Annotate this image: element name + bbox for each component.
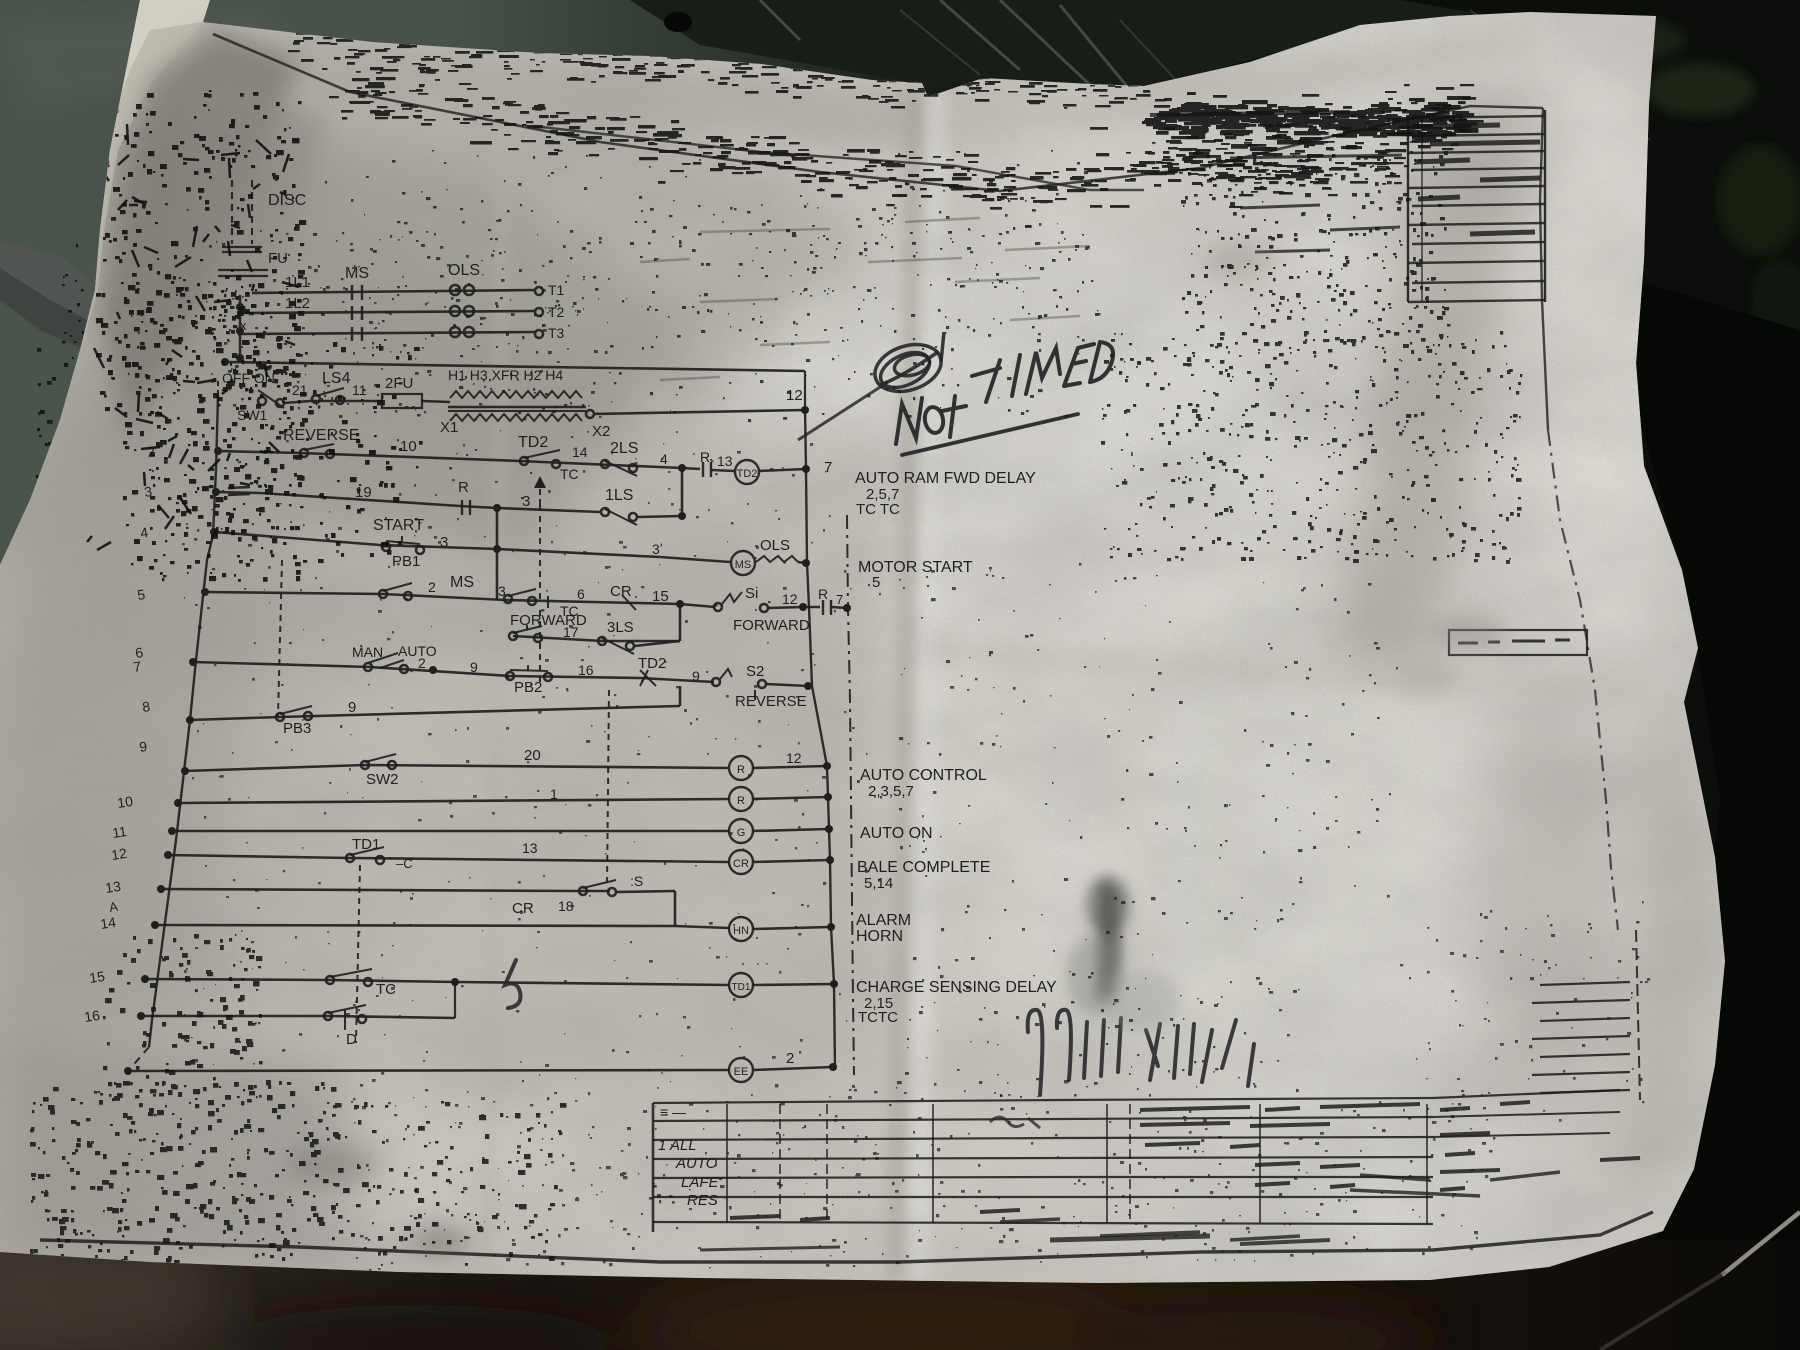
svg-text:CR: CR xyxy=(512,900,534,917)
svg-text:13: 13 xyxy=(104,878,122,896)
svg-text:DISC: DISC xyxy=(268,192,306,209)
svg-text:20: 20 xyxy=(524,747,541,764)
svg-text:LS4: LS4 xyxy=(322,370,351,387)
svg-text:12: 12 xyxy=(110,845,128,863)
svg-text:R: R xyxy=(818,586,828,602)
svg-text:PB1: PB1 xyxy=(392,553,420,570)
svg-text:S2: S2 xyxy=(746,663,764,680)
svg-text:16: 16 xyxy=(83,1007,101,1025)
svg-text:12: 12 xyxy=(786,387,803,404)
svg-text:R: R xyxy=(458,479,469,496)
svg-text:MAN: MAN xyxy=(352,644,383,660)
svg-text:10: 10 xyxy=(400,438,417,455)
svg-text:HN: HN xyxy=(733,925,749,937)
svg-text:AUTO: AUTO xyxy=(675,1155,718,1172)
svg-text:–C: –C xyxy=(396,856,413,871)
svg-text:SW2: SW2 xyxy=(366,771,399,788)
svg-text:1 ALL: 1 ALL xyxy=(658,1137,697,1154)
svg-text:7: 7 xyxy=(836,592,843,607)
svg-text:13: 13 xyxy=(522,840,538,856)
svg-text:12: 12 xyxy=(782,591,798,607)
svg-text:12: 12 xyxy=(786,750,802,766)
svg-text:TD2: TD2 xyxy=(737,468,758,480)
svg-text:MS: MS xyxy=(735,559,752,571)
svg-text:2LS: 2LS xyxy=(610,440,638,457)
svg-text:PB3: PB3 xyxy=(283,720,311,737)
svg-text:14: 14 xyxy=(572,444,588,460)
svg-text:PB2: PB2 xyxy=(514,679,542,696)
svg-text:9: 9 xyxy=(348,699,356,716)
svg-text:R: R xyxy=(737,764,745,776)
svg-text:OLS: OLS xyxy=(448,262,480,279)
svg-text:3: 3 xyxy=(440,534,448,551)
svg-text:CR: CR xyxy=(610,583,632,600)
svg-text:3ʼ: 3ʼ xyxy=(652,541,663,557)
svg-text:TC TC: TC TC xyxy=(856,501,900,518)
svg-text:RES: RES xyxy=(687,1192,718,1209)
svg-text:X2: X2 xyxy=(592,423,610,440)
svg-text::S: :S xyxy=(630,873,643,889)
svg-text:AUTO RAM FWD DELAY: AUTO RAM FWD DELAY xyxy=(855,470,1036,487)
svg-text:1LS: 1LS xyxy=(605,487,633,504)
svg-text:LAFE: LAFE xyxy=(681,1174,720,1191)
svg-text:15: 15 xyxy=(652,588,669,605)
svg-text:2: 2 xyxy=(418,655,426,671)
svg-text:2: 2 xyxy=(428,579,436,595)
svg-text:6: 6 xyxy=(577,586,585,602)
svg-text:Si: Si xyxy=(745,585,758,602)
svg-text:MS: MS xyxy=(345,265,369,282)
svg-text:BALE COMPLETE: BALE COMPLETE xyxy=(857,859,990,876)
svg-text:10: 10 xyxy=(116,793,134,811)
svg-text:R: R xyxy=(700,449,710,465)
svg-text:TD1: TD1 xyxy=(732,982,751,993)
svg-text:EE: EE xyxy=(734,1066,749,1078)
svg-text:REVERSE: REVERSE xyxy=(283,427,359,444)
svg-text:16: 16 xyxy=(578,662,594,678)
svg-text:15: 15 xyxy=(88,968,106,986)
svg-text:OLS: OLS xyxy=(760,537,790,554)
svg-text:R: R xyxy=(737,795,745,807)
svg-text:9: 9 xyxy=(470,659,478,675)
svg-text:2: 2 xyxy=(786,1050,794,1067)
svg-text:1L1: 1L1 xyxy=(285,274,310,291)
svg-text:CR: CR xyxy=(733,858,749,870)
svg-text:≡ —: ≡ — xyxy=(660,1104,686,1120)
svg-text:HORN: HORN xyxy=(856,928,903,945)
svg-text:7: 7 xyxy=(824,459,832,476)
svg-text:5,14: 5,14 xyxy=(864,875,893,892)
svg-text:13: 13 xyxy=(717,453,733,469)
svg-text:T3: T3 xyxy=(548,325,565,341)
svg-text:11: 11 xyxy=(111,823,128,841)
svg-text:1L2: 1L2 xyxy=(285,295,310,312)
svg-text:CHARGE SENSING DELAY: CHARGE SENSING DELAY xyxy=(856,979,1057,996)
svg-text:ALARM: ALARM xyxy=(856,912,911,929)
svg-text:AUTO CONTROL: AUTO CONTROL xyxy=(860,767,987,784)
svg-text:14: 14 xyxy=(99,914,117,932)
svg-text:TC: TC xyxy=(560,466,579,482)
svg-text:1: 1 xyxy=(550,786,558,802)
svg-text:TD2: TD2 xyxy=(518,434,548,451)
svg-text:T1: T1 xyxy=(548,282,565,298)
svg-text:3: 3 xyxy=(498,583,506,599)
svg-text:REVERSE: REVERSE xyxy=(735,693,807,710)
svg-text:MS: MS xyxy=(450,574,474,591)
svg-text:3LS: 3LS xyxy=(607,619,634,636)
svg-text:TCTC: TCTC xyxy=(858,1009,898,1026)
svg-text:H1 H3 XFR H2 H4: H1 H3 XFR H2 H4 xyxy=(448,367,563,383)
svg-text:FORWARD: FORWARD xyxy=(733,617,810,634)
svg-text:TD2: TD2 xyxy=(638,655,666,672)
svg-text:X1: X1 xyxy=(440,419,458,436)
svg-text:3: 3 xyxy=(522,493,530,510)
svg-text:AUTO ON: AUTO ON xyxy=(860,825,933,842)
svg-text:G: G xyxy=(737,827,746,839)
svg-text:5: 5 xyxy=(872,574,880,591)
